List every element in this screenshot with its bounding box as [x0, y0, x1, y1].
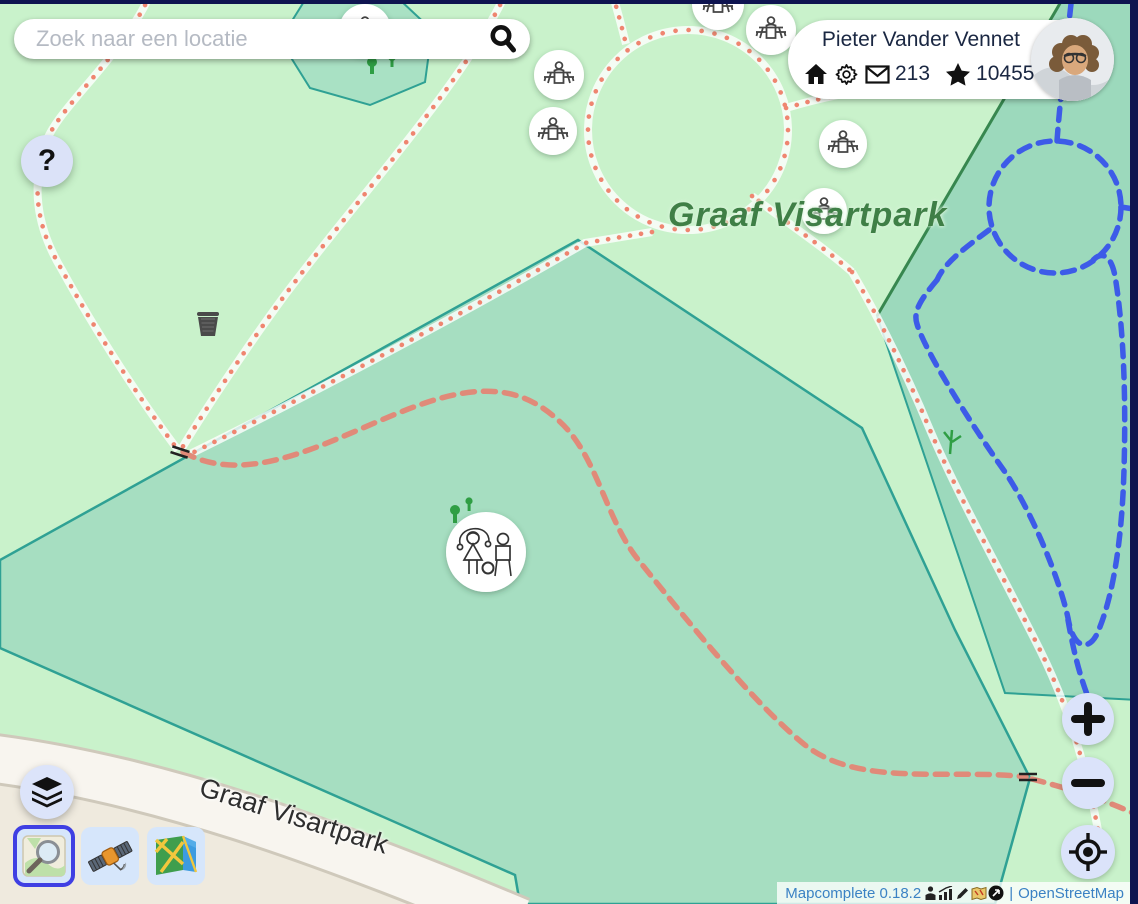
user-avatar[interactable] [1031, 18, 1114, 101]
search-input[interactable] [34, 25, 486, 53]
contributor-icon[interactable] [924, 886, 937, 901]
home-icon[interactable] [804, 63, 828, 85]
zoom-in-button[interactable] [1062, 693, 1114, 745]
osm-carto-icon [21, 833, 67, 879]
map-canvas[interactable] [0, 0, 1138, 904]
picnic-table-marker[interactable] [819, 120, 867, 168]
geolocate-button[interactable] [1061, 825, 1115, 879]
attribution-bar: Mapcomplete 0.18.2 | OpenStreetMap [777, 882, 1130, 904]
minus-icon [1071, 766, 1105, 800]
geolocate-icon [1068, 832, 1108, 872]
map-icon[interactable] [971, 886, 987, 901]
playground-marker[interactable] [446, 512, 526, 592]
window-edge-right [1130, 0, 1138, 904]
unread-messages-count[interactable]: 213 [895, 62, 930, 86]
layers-button[interactable] [20, 765, 74, 819]
picnic-table-marker[interactable] [529, 107, 577, 155]
app-version-label[interactable]: Mapcomplete 0.18.2 [785, 885, 921, 902]
plus-icon [1071, 702, 1105, 736]
background-osm-button[interactable] [13, 825, 75, 887]
mail-icon[interactable] [865, 65, 890, 84]
picnic-table-marker[interactable] [801, 188, 847, 234]
satellite-icon [86, 833, 134, 879]
layers-icon [30, 776, 64, 808]
background-layer-picker [15, 827, 205, 885]
osm-attribution-link[interactable]: OpenStreetMap [1018, 885, 1124, 902]
search-icon[interactable] [486, 22, 520, 56]
stats-icon[interactable] [938, 886, 954, 901]
gear-icon[interactable] [835, 63, 858, 86]
background-satellite-button[interactable] [81, 827, 139, 885]
window-edge-top [0, 0, 1138, 4]
arrow-circle-icon[interactable] [988, 885, 1004, 901]
changeset-count: 10455 [976, 62, 1034, 86]
folded-map-icon [153, 834, 199, 878]
help-button[interactable]: ? [21, 135, 73, 187]
background-map-button[interactable] [147, 827, 205, 885]
search-bar[interactable] [14, 19, 530, 59]
picnic-table-marker[interactable] [746, 5, 796, 55]
user-name[interactable]: Pieter Vander Vennet [822, 28, 1020, 52]
star-icon [945, 62, 971, 86]
zoom-out-button[interactable] [1062, 757, 1114, 809]
picnic-table-marker[interactable] [534, 50, 584, 100]
question-mark-icon: ? [38, 144, 56, 178]
attribution-separator: | [1009, 885, 1013, 902]
edit-icon[interactable] [955, 886, 970, 901]
